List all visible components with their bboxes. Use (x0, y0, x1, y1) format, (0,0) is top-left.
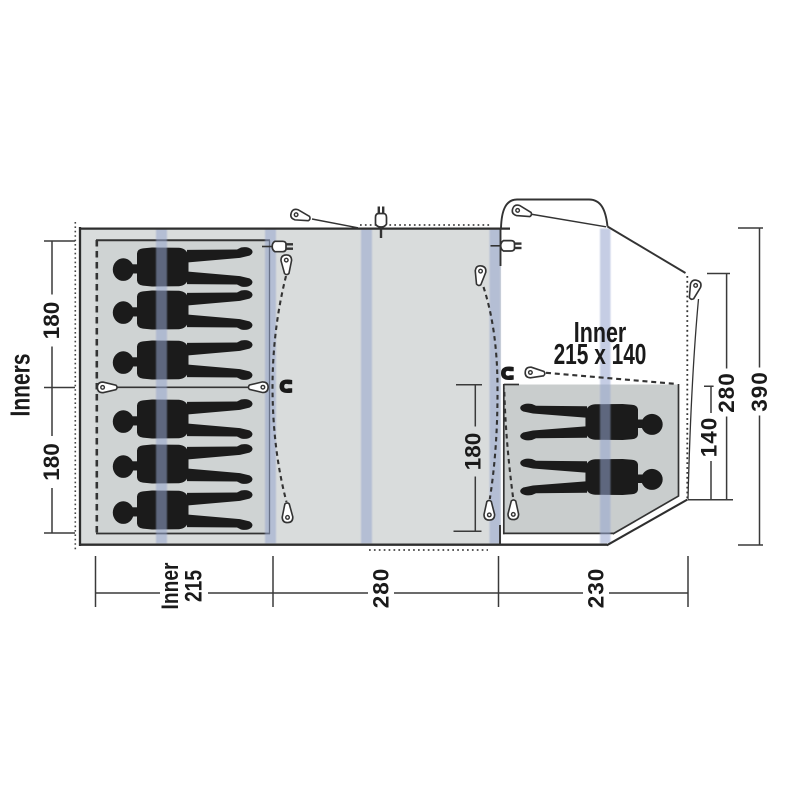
svg-text:215 x 140: 215 x 140 (554, 339, 647, 371)
svg-text:280: 280 (714, 372, 739, 413)
svg-text:215: 215 (179, 570, 207, 602)
svg-text:180: 180 (39, 443, 64, 481)
svg-text:180: 180 (461, 433, 486, 471)
svg-text:280: 280 (369, 568, 394, 609)
svg-text:180: 180 (39, 302, 64, 340)
svg-text:140: 140 (697, 417, 722, 458)
svg-text:230: 230 (584, 568, 609, 609)
svg-text:390: 390 (747, 371, 772, 412)
svg-text:Inners: Inners (6, 354, 37, 417)
